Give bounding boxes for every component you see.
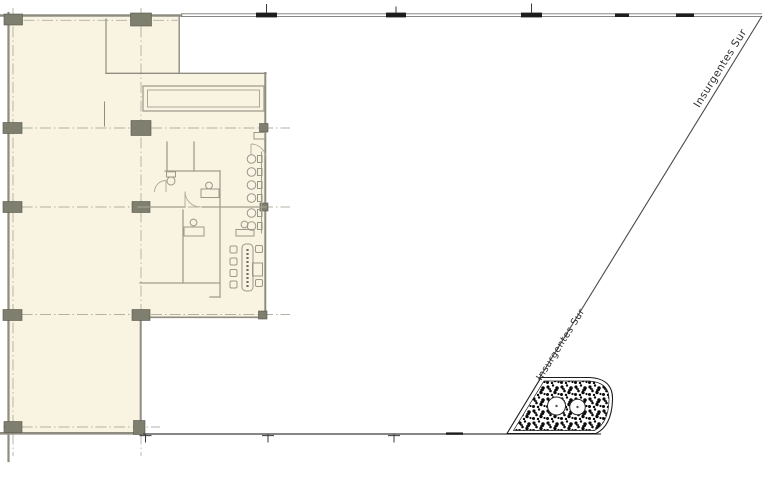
floor-plan-svg: Insurgentes Sur Insurgentes Sur xyxy=(0,0,770,483)
column-marker xyxy=(3,123,22,134)
street-label-lower: Insurgentes Sur xyxy=(534,307,587,383)
column-marker xyxy=(131,121,151,136)
chair xyxy=(247,168,256,177)
tree-center-dot xyxy=(555,405,557,407)
column-marker xyxy=(134,421,146,435)
building-floor-slab xyxy=(7,17,266,434)
tree-center-dot xyxy=(576,406,578,408)
column-marker xyxy=(3,310,22,321)
boundary-marker xyxy=(386,13,406,18)
boundary-marker xyxy=(521,13,542,18)
street-label-upper: Insurgentes Sur xyxy=(691,27,749,110)
site-boundary-north xyxy=(181,4,762,18)
column-marker xyxy=(132,310,150,321)
boundary-marker xyxy=(446,432,463,434)
survey-tick xyxy=(262,434,274,443)
column-marker xyxy=(3,202,22,213)
boundary-marker xyxy=(676,13,694,17)
column-marker xyxy=(260,124,269,133)
column-marker xyxy=(131,13,152,26)
boundary-marker xyxy=(615,13,629,17)
survey-tick xyxy=(388,434,400,443)
chair xyxy=(247,209,256,218)
column-marker xyxy=(4,14,23,25)
boundary-marker xyxy=(256,13,277,18)
chair xyxy=(247,155,256,164)
column-marker xyxy=(259,311,268,319)
landscape-area xyxy=(507,378,613,434)
chair xyxy=(247,194,256,203)
column-marker xyxy=(4,422,22,433)
floor-plan-canvas: Insurgentes Sur Insurgentes Sur xyxy=(0,0,770,483)
chair xyxy=(247,181,256,190)
